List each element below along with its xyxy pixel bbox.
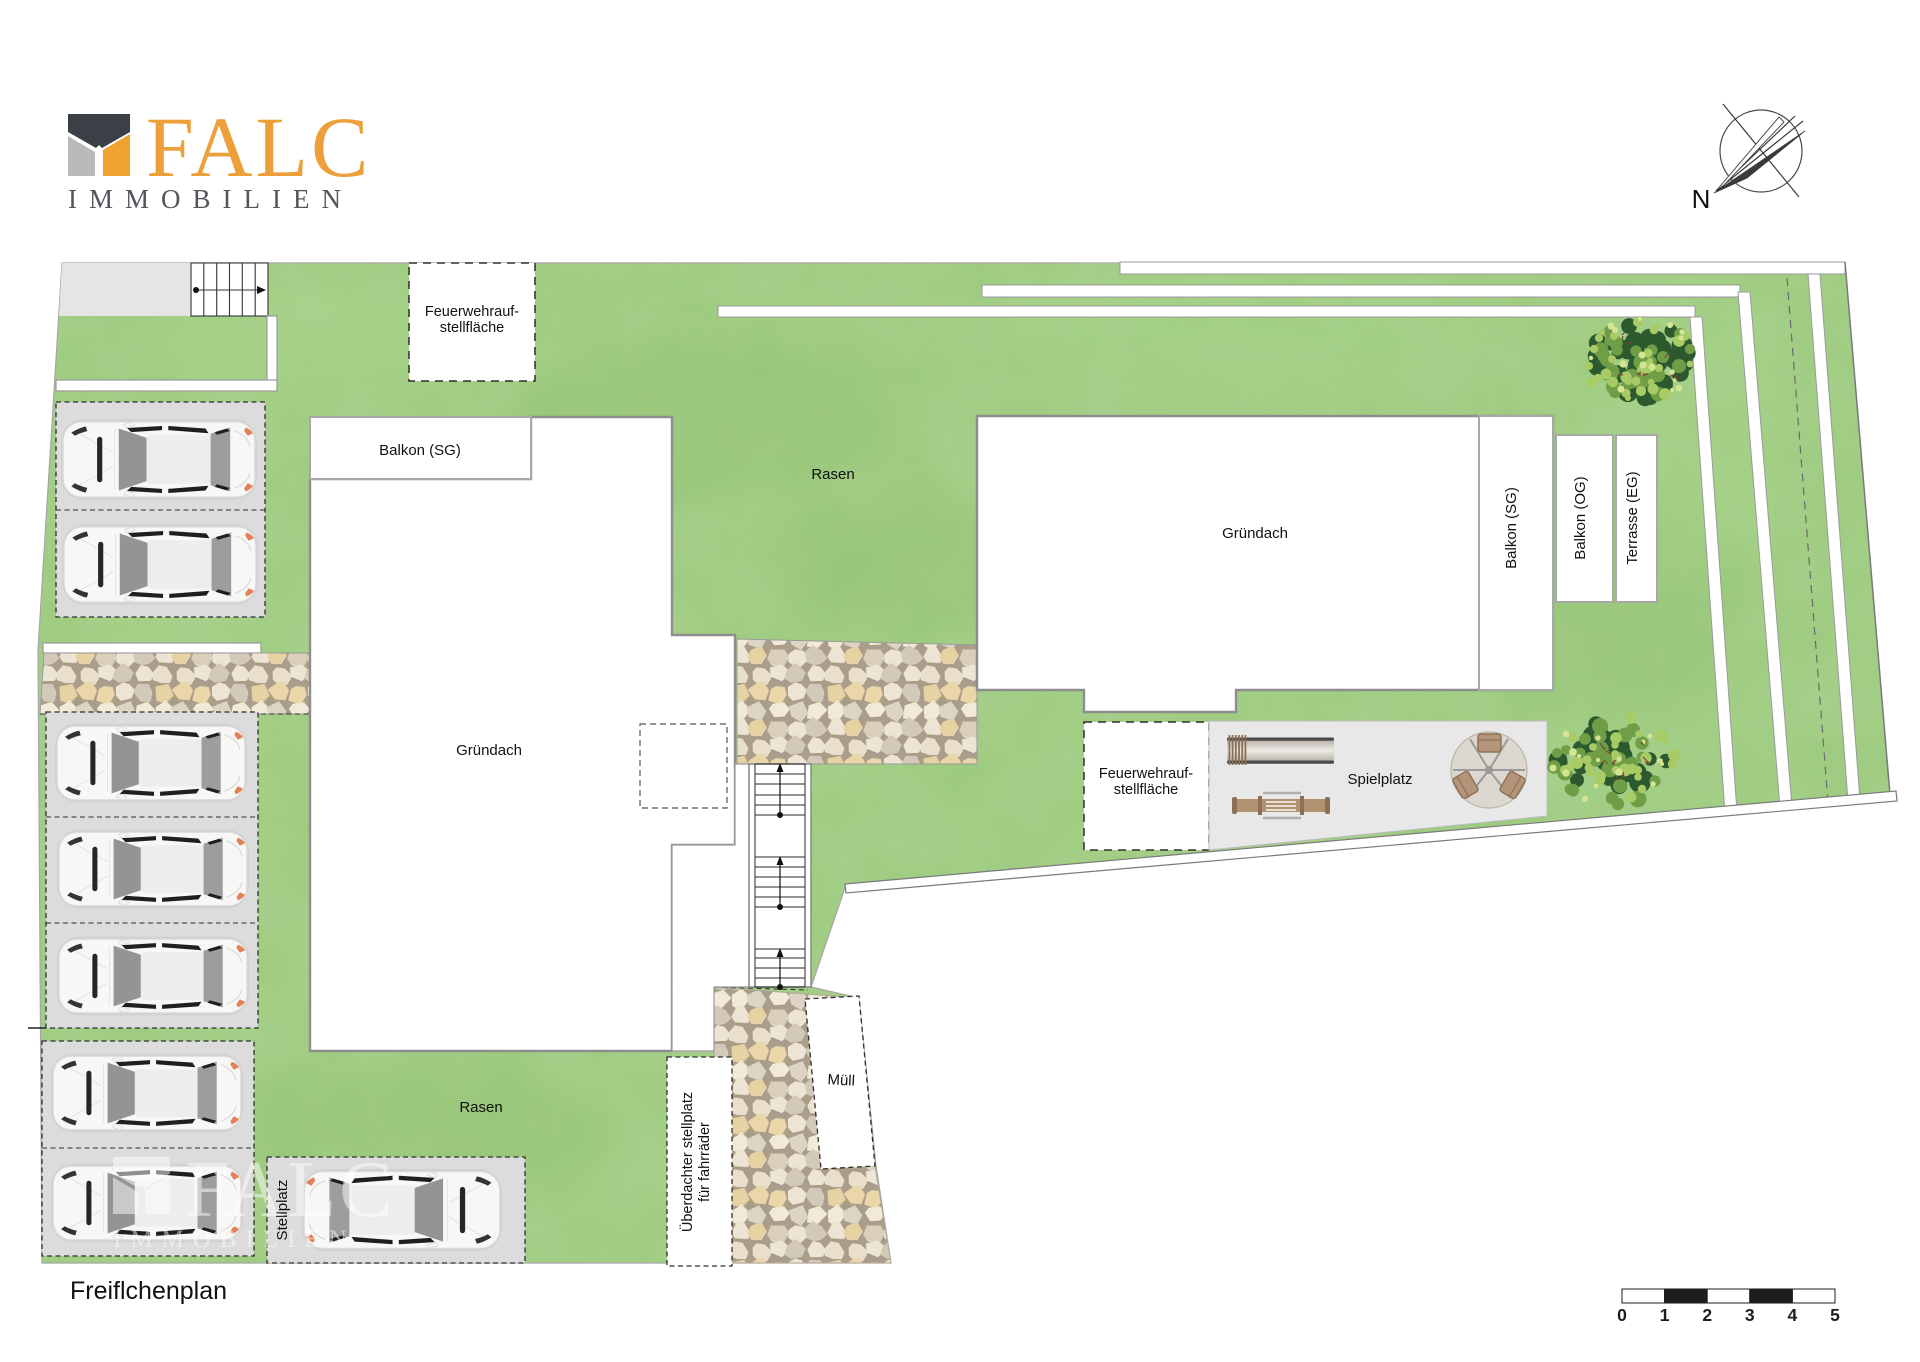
svg-text:N: N	[1692, 184, 1711, 214]
svg-text:2: 2	[1702, 1305, 1712, 1325]
svg-text:Freiflchenplan: Freiflchenplan	[70, 1277, 227, 1305]
svg-text:Feuerwehrauf-: Feuerwehrauf-	[425, 304, 519, 320]
svg-text:stellfläche: stellfläche	[440, 320, 504, 336]
svg-text:IMMOBILIEN: IMMOBILIEN	[68, 184, 353, 214]
svg-text:Müll: Müll	[827, 1071, 855, 1089]
svg-text:Rasen: Rasen	[459, 1099, 502, 1116]
svg-text:4: 4	[1788, 1305, 1798, 1325]
svg-text:Spielplatz: Spielplatz	[1347, 771, 1412, 788]
svg-text:0: 0	[1617, 1305, 1627, 1325]
svg-text:Feuerwehrauf-: Feuerwehrauf-	[1099, 766, 1193, 782]
svg-text:FALC: FALC	[185, 1146, 396, 1234]
svg-text:stellfläche: stellfläche	[1114, 782, 1178, 798]
svg-text:Balkon (OG): Balkon (OG)	[1572, 476, 1589, 559]
svg-text:1: 1	[1660, 1305, 1670, 1325]
svg-text:Gründach: Gründach	[1222, 525, 1288, 542]
svg-text:IMMOBILIEN: IMMOBILIEN	[113, 1226, 356, 1253]
svg-text:Balkon (SG): Balkon (SG)	[379, 442, 461, 459]
svg-text:für fahrräder: für fahrräder	[697, 1122, 713, 1202]
svg-text:Gründach: Gründach	[456, 742, 522, 759]
svg-text:Überdachter stellplatz: Überdachter stellplatz	[678, 1092, 696, 1232]
svg-text:FALC: FALC	[146, 99, 371, 195]
svg-text:Terrasse (EG): Terrasse (EG)	[1624, 471, 1641, 564]
svg-text:Balkon (SG): Balkon (SG)	[1503, 487, 1520, 569]
svg-text:5: 5	[1830, 1305, 1840, 1325]
svg-text:3: 3	[1745, 1305, 1755, 1325]
svg-text:Rasen: Rasen	[811, 466, 854, 483]
